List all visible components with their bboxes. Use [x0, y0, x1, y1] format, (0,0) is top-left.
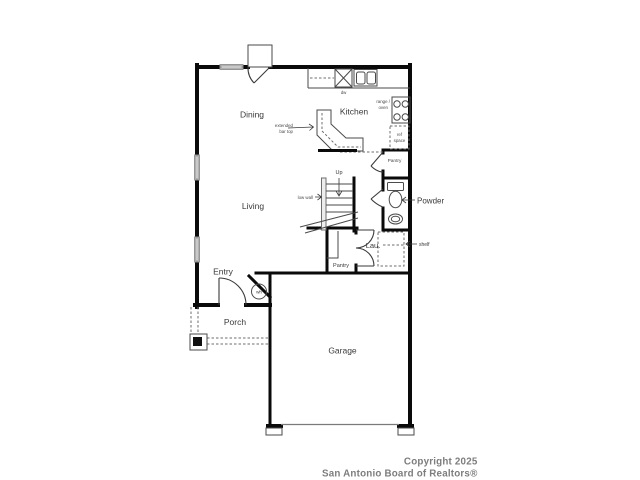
windows: [195, 65, 243, 262]
range-icon: [392, 97, 410, 123]
room-label-living: Living: [242, 201, 264, 211]
understair-pantry: [327, 231, 338, 258]
label-extended-bar-1: extended: [275, 123, 294, 128]
label-shelf: shelf: [419, 242, 430, 248]
label-ref-2: space: [394, 138, 406, 143]
pantry-door: [371, 152, 383, 172]
porch-outline: [190, 307, 268, 350]
garage-door: [266, 425, 414, 436]
copyright-line-2: San Antonio Board of Realtors®: [322, 469, 478, 480]
stairs: [300, 178, 358, 233]
toilet-icon: [388, 183, 404, 208]
powder-room: [371, 183, 404, 225]
label-up: Up: [335, 170, 342, 176]
window-left-1-glass: [196, 156, 198, 179]
back-door: [248, 45, 272, 83]
room-label-dining: Dining: [240, 110, 264, 120]
label-ref-1: ref: [397, 132, 403, 137]
shelf-closet: [378, 232, 404, 266]
room-label-pantry-hall: Pantry: [388, 158, 402, 164]
label-low-wall: low wall: [298, 195, 313, 200]
label-dw: dw: [341, 90, 347, 95]
stairs-low-wall: [322, 178, 327, 230]
room-label-kitchen: Kitchen: [340, 107, 369, 117]
copyright-line-1: Copyright 2025: [404, 457, 478, 468]
kitchen-sink-icon: [354, 70, 377, 87]
window-top-glass: [221, 66, 242, 68]
powder-door: [371, 189, 383, 199]
label-wh: wh: [256, 290, 262, 295]
room-label-pantry-understairs: Pantry: [333, 263, 349, 269]
label-range-2: oven: [378, 105, 388, 110]
low-wall-arrow: [315, 194, 322, 200]
window-left-2-glass: [196, 238, 198, 261]
stairs-break-line: [300, 212, 358, 233]
room-label-garage: Garage: [328, 346, 357, 356]
room-label-laundry: Lau.: [366, 241, 381, 250]
floor-plan-drawing: Dining Kitchen Living Entry Porch Garage…: [0, 0, 640, 480]
dishwasher-icon: [335, 69, 352, 87]
label-range-1: range /: [376, 99, 390, 104]
front-door: [219, 278, 246, 305]
room-label-powder: Powder: [417, 197, 444, 206]
room-label-entry: Entry: [213, 267, 234, 277]
porch-column: [190, 334, 207, 350]
floor-plan-page: Dining Kitchen Living Entry Porch Garage…: [0, 0, 640, 480]
bathroom-sink-icon: [389, 214, 403, 224]
label-extended-bar-2: bar top: [279, 129, 293, 134]
room-label-porch: Porch: [224, 317, 246, 327]
back-door-landing: [248, 45, 272, 67]
